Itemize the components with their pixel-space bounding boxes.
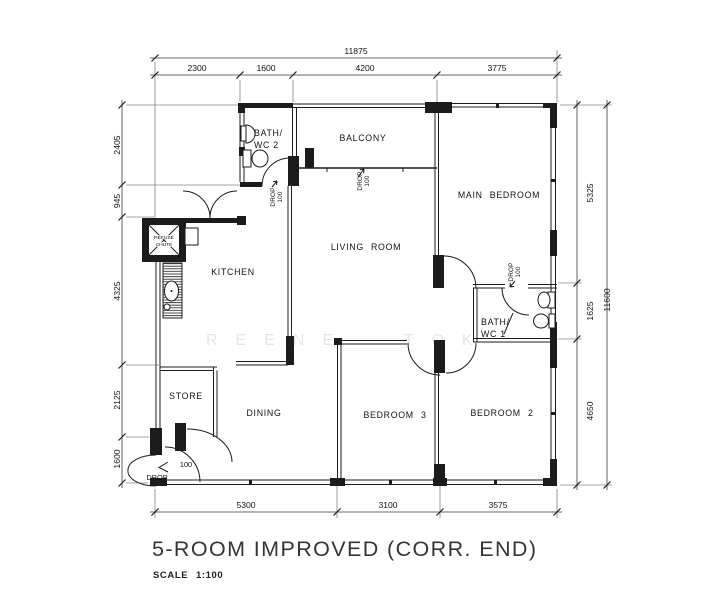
walls-thin xyxy=(155,103,557,485)
store-door-arc xyxy=(187,429,232,462)
bath2-wc-tank xyxy=(243,150,251,167)
kitchen-sink-drain xyxy=(171,290,173,292)
drop-label-balcony: DROP 100 xyxy=(357,171,371,190)
refuse-chute-label-2: CHUTE xyxy=(156,242,174,248)
dim-right-3: 4650 xyxy=(585,401,595,420)
refuse-chute-label-1: REFUSE xyxy=(154,235,175,241)
scale-label: SCALE xyxy=(153,570,188,581)
dim-bottom-3: 3575 xyxy=(488,500,507,510)
dim-bottom-2: 3100 xyxy=(378,500,397,510)
room-label-bath1-2: WC 1 xyxy=(481,329,506,339)
dim-left-3: 4325 xyxy=(112,281,122,300)
room-label-balcony: BALCONY xyxy=(340,133,387,143)
dim-top-3: 4200 xyxy=(355,63,374,73)
title-block: 5-ROOM IMPROVED (CORR. END) SCALE 1:100 xyxy=(152,537,537,581)
room-label-bath1-1: BATH/ xyxy=(481,317,510,327)
watermark-text-1: REENE xyxy=(206,332,351,349)
room-label-bedroom2: BEDROOM 2 xyxy=(470,408,533,418)
service-door-left-arc xyxy=(183,191,210,218)
dim-right-2: 1625 xyxy=(585,301,595,320)
dim-left-4: 2125 xyxy=(112,390,122,409)
svg-text:100: 100 xyxy=(364,175,371,187)
room-label-living: LIVING ROOM xyxy=(331,242,401,252)
svg-text:100: 100 xyxy=(515,266,522,278)
dim-top-2: 1600 xyxy=(256,63,275,73)
kitchen-tap xyxy=(164,304,170,310)
room-label-bath2-2: WC 2 xyxy=(254,140,279,150)
dim-right-total: 11600 xyxy=(602,288,612,311)
drop-label-entrance: 100 DROP xyxy=(146,460,192,482)
fixtures xyxy=(163,125,555,328)
service-door-right-arc xyxy=(210,191,237,218)
dim-left-2: 945 xyxy=(112,194,122,209)
bath1-basin xyxy=(538,292,550,308)
room-label-bath2-1: BATH/ xyxy=(254,128,283,138)
bath1-wc-bowl xyxy=(534,314,549,328)
bath1-wc-tank xyxy=(549,314,555,328)
room-label-kitchen: KITCHEN xyxy=(211,267,255,277)
chute-hopper xyxy=(185,228,198,245)
bath2-wc-bowl xyxy=(252,150,268,167)
floor-plan-page: REENE TOK xyxy=(0,0,705,600)
dim-top-1: 2300 xyxy=(187,63,206,73)
main-bedroom-door-arc xyxy=(444,256,476,288)
svg-text:DROP: DROP xyxy=(270,187,277,206)
drop-label-bath1: DROP 100 xyxy=(508,262,522,281)
dim-left-5: 1600 xyxy=(112,449,122,468)
dim-bottom-1: 5300 xyxy=(236,500,255,510)
doors xyxy=(128,158,529,486)
walls-solid xyxy=(150,102,557,486)
refuse-chute: REFUSE CHUTE xyxy=(142,218,198,262)
svg-text:100: 100 xyxy=(277,191,284,203)
dimension-labels: 11875 2300 1600 4200 3775 2405 945 4325 … xyxy=(112,46,612,510)
bath1-door-arc xyxy=(502,288,529,315)
dim-right-1: 5325 xyxy=(585,183,595,202)
drop-label-bath2: DROP 100 xyxy=(270,187,284,206)
room-label-store: STORE xyxy=(169,391,203,401)
dim-top-4: 3775 xyxy=(487,63,506,73)
room-label-main-bedroom: MAIN BEDROOM xyxy=(458,190,540,200)
svg-text:DROP: DROP xyxy=(508,262,515,281)
dim-left-1: 2405 xyxy=(112,135,122,154)
plan-title: 5-ROOM IMPROVED (CORR. END) xyxy=(152,537,537,561)
room-labels: BALCONY LIVING ROOM KITCHEN DINING MAIN … xyxy=(169,128,540,420)
scale-value: 1:100 xyxy=(196,570,223,581)
bath2-basin-backing xyxy=(241,126,246,141)
room-label-bedroom3: BEDROOM 3 xyxy=(363,410,426,420)
dim-top-total: 11875 xyxy=(344,46,367,56)
svg-text:DROP: DROP xyxy=(146,473,167,482)
drop-annotations: DROP 100 DROP 100 DROP 100 100 DROP xyxy=(146,169,522,482)
room-label-dining: DINING xyxy=(247,408,282,418)
svg-text:100: 100 xyxy=(180,460,192,469)
floor-plan-drawing: REENE TOK xyxy=(0,0,705,600)
watermark-text-2: TOK xyxy=(404,332,491,349)
